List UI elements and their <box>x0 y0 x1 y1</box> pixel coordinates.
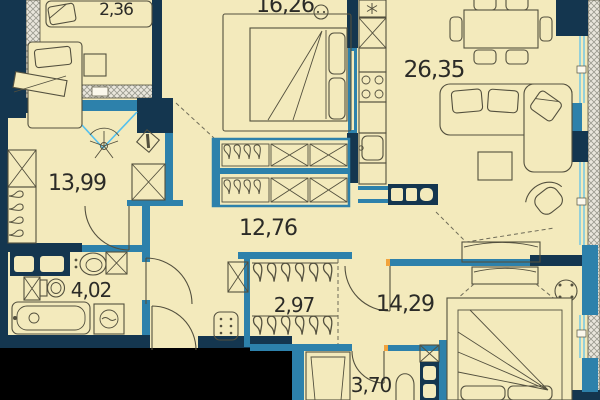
bathtub-drain <box>29 313 39 323</box>
wall-corner-topright <box>556 0 588 36</box>
bathroom-door <box>146 258 192 304</box>
wall-left-thin <box>0 118 8 348</box>
bench-dots <box>220 318 233 335</box>
entrance-door <box>152 306 196 350</box>
four-burners-icon <box>362 76 383 98</box>
dining-chair <box>506 0 528 10</box>
shower-wall-right <box>439 340 447 400</box>
five-spoke-chair-icon <box>90 128 119 158</box>
label-balcony: 2,36 <box>99 0 133 20</box>
glazing-mullion-3 <box>577 330 586 337</box>
dining-chair <box>506 50 528 64</box>
label-bedroom-right: 14,29 <box>376 292 434 317</box>
kitchen-units <box>359 0 386 184</box>
wall-pier-center <box>137 98 173 133</box>
wall-object <box>137 130 160 153</box>
kitchen-counter-1 <box>359 48 386 72</box>
dining-table <box>464 10 538 48</box>
bedroom-left-door <box>85 206 129 250</box>
closet-wall-left <box>244 259 250 347</box>
label-hall: 12,76 <box>239 216 297 241</box>
label-bedroom-left: 13,99 <box>48 171 106 196</box>
wall-bath-top <box>8 243 82 252</box>
balcony-door-sill <box>92 87 108 96</box>
sofa-vertical <box>524 84 572 172</box>
snowflake-icon <box>367 3 377 14</box>
nightstand <box>84 54 106 76</box>
wall-bedroomleft-bottom <box>127 200 183 206</box>
window-pier-3 <box>582 358 598 392</box>
kitchen-counter-3 <box>359 163 386 184</box>
shoe-bench <box>214 312 238 340</box>
double-bed-top <box>250 28 347 121</box>
tv-sightline-living <box>436 212 554 242</box>
room-hall <box>152 139 349 350</box>
toilet-2 <box>396 374 414 400</box>
wall-kitchen-top <box>347 0 358 48</box>
drum-wave-icon <box>102 318 116 321</box>
wall-bedroomleft-hall <box>165 133 173 205</box>
room-bedroom-top <box>176 5 351 138</box>
closet-wall-top <box>238 252 352 259</box>
dining-chair <box>450 17 462 41</box>
wall-bath-top-right <box>82 245 142 252</box>
room-kitchen-living <box>388 0 572 262</box>
tv-wall-line-1 <box>358 186 388 190</box>
tv-wall-line-2 <box>358 199 388 203</box>
label-kitchen-living: 26,35 <box>404 57 465 83</box>
glazing-mullion-2 <box>577 198 586 205</box>
wall-left-thick <box>0 0 26 118</box>
glazing-mullion-1 <box>577 66 586 73</box>
label-bedroom-top: 16,26 <box>256 0 314 18</box>
bedroom-top-opening <box>176 103 214 138</box>
room-bedroom-left <box>8 42 165 250</box>
label-closet: 2,97 <box>274 293 315 317</box>
floor-plan-canvas: 2,36 16,26 26,35 13,99 12,76 4,02 2,97 1… <box>0 0 600 400</box>
facade-wall-right <box>588 0 600 400</box>
wall-balcony-bedroom <box>152 0 162 98</box>
detector-icon <box>314 5 328 19</box>
armchair <box>522 174 571 221</box>
shower-wall-left <box>292 348 304 400</box>
window-pier-2 <box>582 245 598 315</box>
wall-vestibule <box>142 206 150 252</box>
kitchen-counter-2 <box>359 102 386 133</box>
bath-doorjamb-bottom <box>142 300 150 335</box>
kitchen-sink <box>362 136 383 160</box>
outside-mass <box>0 348 292 400</box>
label-bathroom: 4,02 <box>71 278 112 302</box>
doorjamb-marker-bedroom <box>386 259 390 266</box>
dining-chair <box>474 0 496 10</box>
wall-living-bedroom <box>530 255 588 266</box>
stove <box>359 72 386 102</box>
tv-stand <box>472 267 538 284</box>
wall-bottom-bath <box>0 335 150 348</box>
dining-chair <box>474 50 496 64</box>
label-shower: 3,70 <box>351 373 392 397</box>
dining-chair <box>540 17 552 41</box>
floor-plan: 2,36 16,26 26,35 13,99 12,76 4,02 2,97 1… <box>0 0 600 400</box>
double-bed-right <box>447 298 572 400</box>
doorjamb-marker-shower <box>384 345 388 351</box>
toilet <box>40 279 65 297</box>
coffee-table <box>478 152 512 180</box>
